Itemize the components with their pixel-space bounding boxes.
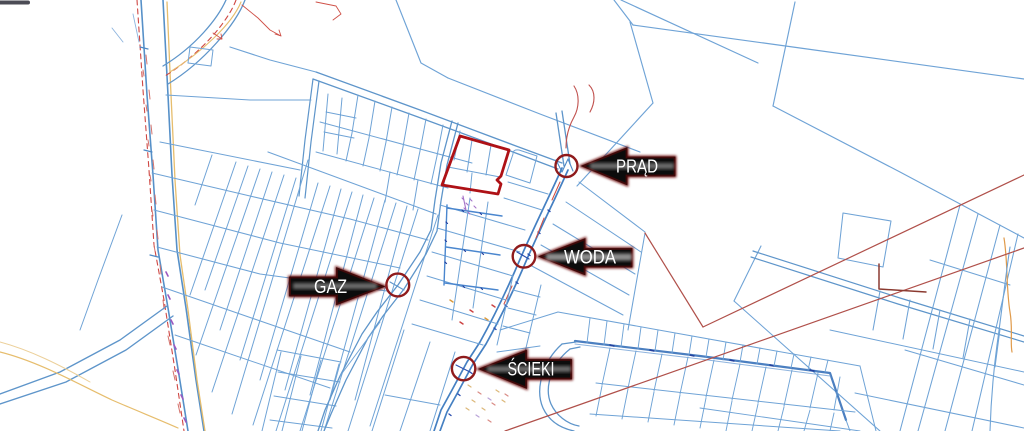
svg-text:ŚCIEKI: ŚCIEKI bbox=[508, 359, 555, 381]
svg-text:GAZ: GAZ bbox=[314, 277, 347, 298]
svg-text:WODA: WODA bbox=[564, 248, 616, 269]
svg-text:PRĄD: PRĄD bbox=[616, 156, 658, 177]
